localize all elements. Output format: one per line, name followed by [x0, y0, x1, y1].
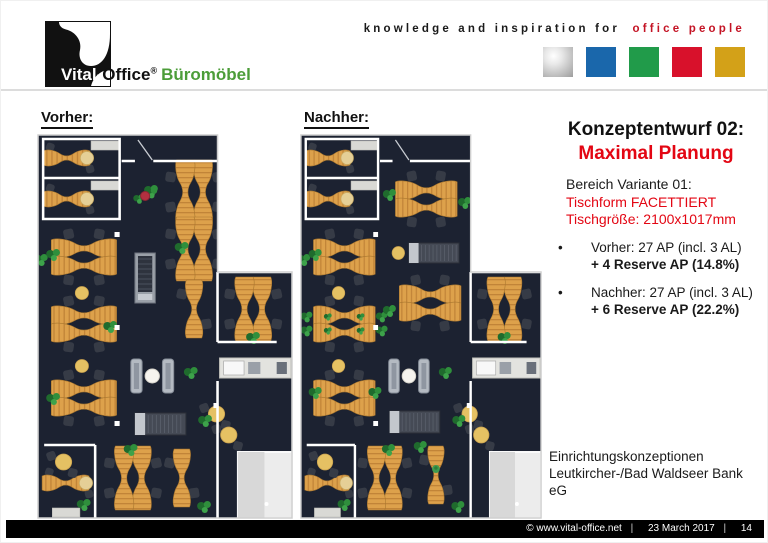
bullet-vorher: • Vorher: 27 AP (incl. 3 AL) + 4 Reserve… [558, 240, 758, 273]
bullet-nachher: • Nachher: 27 AP (incl. 3 AL) + 6 Reserv… [558, 285, 758, 318]
red-square [672, 47, 702, 77]
variant-block: Bereich Variante 01: Tischform FACETTIER… [566, 176, 736, 229]
label-nachher: Nachher: [304, 109, 369, 129]
tagline: knowledge and inspiration for office peo… [364, 23, 745, 35]
logo-registered-mark: ® [150, 65, 157, 75]
project-line1: Einrichtungskonzeptionen [549, 448, 743, 465]
logo-brand-right: Office [102, 65, 150, 84]
logo-wordmark: Vital-Office®Büromöbel [61, 65, 251, 85]
project-block: Einrichtungskonzeptionen Leutkircher-/Ba… [549, 448, 743, 499]
bullet-dot: • [558, 240, 563, 257]
project-line3: eG [549, 482, 743, 499]
variant-line2: Tischform FACETTIERT [566, 194, 736, 212]
label-vorher: Vorher: [41, 109, 93, 129]
logo-suffix: Büromöbel [161, 65, 251, 84]
bullet-vorher-bold: + 4 Reserve AP (14.8%) [591, 257, 758, 274]
floorplan-vorher-image [36, 131, 293, 519]
footer-separator: | [723, 523, 726, 534]
tagline-black: knowledge and inspiration for [364, 23, 620, 35]
bullet-vorher-normal: Vorher: 27 AP (incl. 3 AL) [591, 240, 758, 257]
bullet-nachher-normal: Nachher: 27 AP (incl. 3 AL) [591, 285, 758, 302]
logo-brand-left: Vital- [61, 65, 102, 84]
footer-separator: | [631, 523, 634, 534]
tagline-red: office people [632, 23, 745, 35]
project-line2: Leutkircher-/Bad Waldseer Bank [549, 465, 743, 482]
footer-copyright: © www.vital-office.net [526, 523, 622, 534]
slide: Vital-Office®Büromöbel knowledge and ins… [0, 0, 768, 543]
green-square [629, 47, 659, 77]
brand-color-squares [543, 47, 745, 77]
silver-square [543, 47, 573, 77]
header-divider [1, 89, 768, 91]
concept-title: Konzeptentwurf 02: [547, 119, 765, 141]
floorplan-nachher-image [299, 131, 542, 519]
gold-square [715, 47, 745, 77]
footer-page-number: 14 [741, 523, 752, 534]
footer-date: 23 March 2017 [648, 523, 715, 534]
variant-line1: Bereich Variante 01: [566, 176, 736, 194]
blue-square [586, 47, 616, 77]
bullet-dot: • [558, 285, 563, 302]
footer-bar: © www.vital-office.net | 23 March 2017 |… [6, 520, 764, 538]
concept-subtitle: Maximal Planung [547, 143, 765, 165]
variant-line3: Tischgröße: 2100x1017mm [566, 211, 736, 229]
bullet-nachher-bold: + 6 Reserve AP (22.2%) [591, 302, 758, 319]
